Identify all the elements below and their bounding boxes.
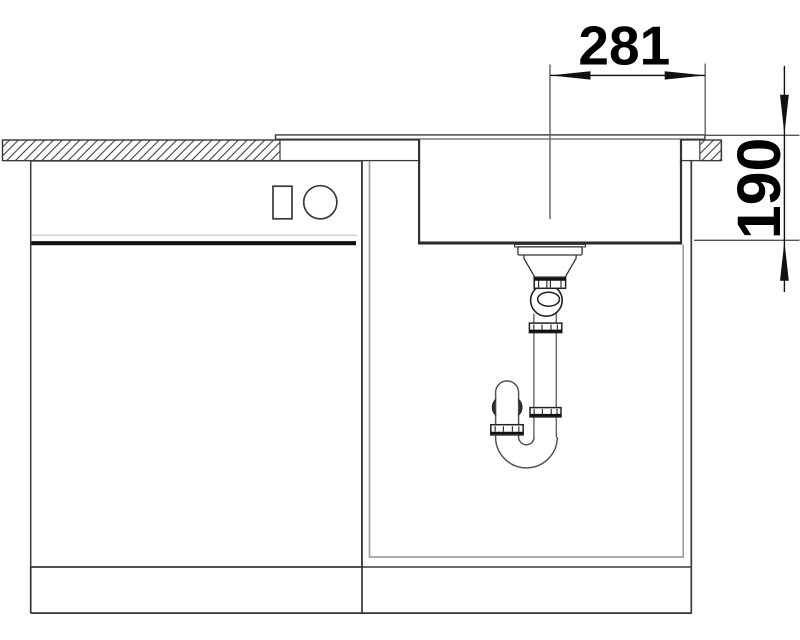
svg-text:281: 281 — [578, 15, 670, 77]
svg-text:190: 190 — [725, 138, 793, 240]
